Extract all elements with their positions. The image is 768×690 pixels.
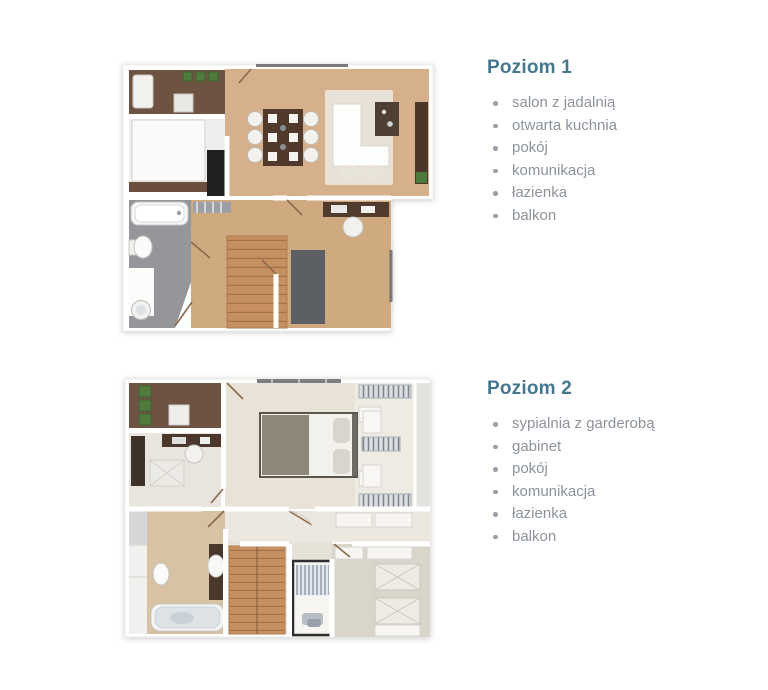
clothes-rack — [359, 494, 411, 507]
table-decor — [280, 125, 286, 131]
plant-icon — [196, 72, 205, 81]
striped-blanket — [296, 565, 329, 595]
floorplan-level-1 — [113, 52, 455, 340]
level-1-info: Poziom 1 salon z jadalnią otwarta kuchni… — [487, 56, 757, 227]
bathtub-inner — [135, 205, 184, 222]
side-strip — [415, 383, 430, 509]
laptop — [331, 205, 347, 213]
dining-chair — [248, 112, 263, 127]
pillow — [307, 619, 321, 627]
faucet-icon — [177, 211, 181, 215]
desk-chair — [343, 217, 363, 237]
lounger — [133, 75, 153, 108]
washing-machine-door — [136, 305, 146, 315]
balcony-table — [169, 405, 189, 425]
room-item: łazienka — [487, 182, 757, 205]
tv-fridge-unit — [207, 150, 225, 196]
level-2-heading: Poziom 2 — [487, 377, 757, 400]
placemat — [268, 152, 277, 161]
duct — [193, 202, 231, 213]
clothes-rack — [362, 437, 400, 451]
clothes-rack — [359, 385, 411, 398]
toilet — [134, 236, 152, 258]
room-item: gabinet — [487, 436, 757, 459]
desk-pad — [361, 206, 375, 213]
floorplan-level-1-drawing — [113, 52, 455, 335]
placemat — [268, 114, 277, 123]
level-2-room-list: sypialnia z garderobą gabinet pokój komu… — [487, 413, 757, 548]
laptop — [172, 437, 186, 444]
pillow — [333, 449, 350, 474]
floorplan-level-2-drawing — [112, 367, 462, 664]
room-item: łazienka — [487, 503, 757, 526]
dining-set — [248, 109, 319, 166]
hall-closet — [375, 513, 412, 527]
level-1-room-list: salon z jadalnią otwarta kuchnia pokój k… — [487, 92, 757, 227]
bath-water — [170, 612, 194, 624]
tv-cabinet — [415, 102, 428, 184]
plant-icon — [139, 400, 151, 411]
room-item: komunikacja — [487, 481, 757, 504]
pillow — [333, 418, 350, 443]
single-bed — [293, 561, 332, 635]
dark-rug — [291, 250, 325, 324]
dining-chair — [248, 130, 263, 145]
sofa-cushion — [338, 165, 360, 181]
dining-chair — [304, 130, 319, 145]
room-item: pokój — [487, 458, 757, 481]
plant-icon — [416, 172, 427, 183]
dining-chair — [304, 148, 319, 163]
cabinet — [367, 547, 412, 559]
level-1-heading: Poziom 1 — [487, 56, 757, 79]
toilet — [153, 563, 169, 585]
room-item: otwarta kuchnia — [487, 115, 757, 138]
room-item: balkon — [487, 205, 757, 228]
dining-chair — [304, 112, 319, 127]
room-item: komunikacja — [487, 160, 757, 183]
coffee-table — [375, 102, 399, 136]
room-item: sypialnia z garderobą — [487, 413, 757, 436]
table-decor — [280, 144, 286, 150]
level-2-info: Poziom 2 sypialnia z garderobą gabinet p… — [487, 377, 757, 548]
kitchen-island — [132, 120, 205, 181]
placemat — [289, 133, 298, 142]
desk-chair — [185, 445, 203, 463]
plant-icon — [183, 72, 192, 81]
placemat — [289, 114, 298, 123]
plant-icon — [209, 72, 218, 81]
desk-pad — [200, 437, 210, 444]
room-item: salon z jadalnią — [487, 92, 757, 115]
wardrobe-box — [363, 465, 381, 487]
window-right — [390, 250, 393, 302]
placemat — [289, 152, 298, 161]
stairs — [229, 546, 285, 634]
sink — [208, 555, 224, 577]
room-item: pokój — [487, 137, 757, 160]
sofa-cushion — [361, 165, 383, 181]
floorplan-level-2 — [112, 367, 462, 669]
dining-chair — [248, 148, 263, 163]
headboard — [352, 414, 357, 476]
office-cabinet — [131, 436, 145, 486]
bed-blanket — [262, 415, 309, 475]
window-top — [256, 64, 348, 67]
placemat — [268, 133, 277, 142]
balcony-chair — [174, 94, 193, 112]
cabinet — [375, 625, 420, 636]
cabinet-strip-top — [129, 511, 147, 545]
hall-closet — [336, 513, 372, 527]
plant-icon — [139, 386, 151, 397]
kitchen-counter — [129, 182, 207, 192]
table-decor — [387, 121, 393, 127]
room-item: balkon — [487, 526, 757, 549]
plant-icon — [139, 414, 151, 425]
wardrobe-box — [363, 411, 381, 433]
table-decor — [382, 110, 386, 114]
